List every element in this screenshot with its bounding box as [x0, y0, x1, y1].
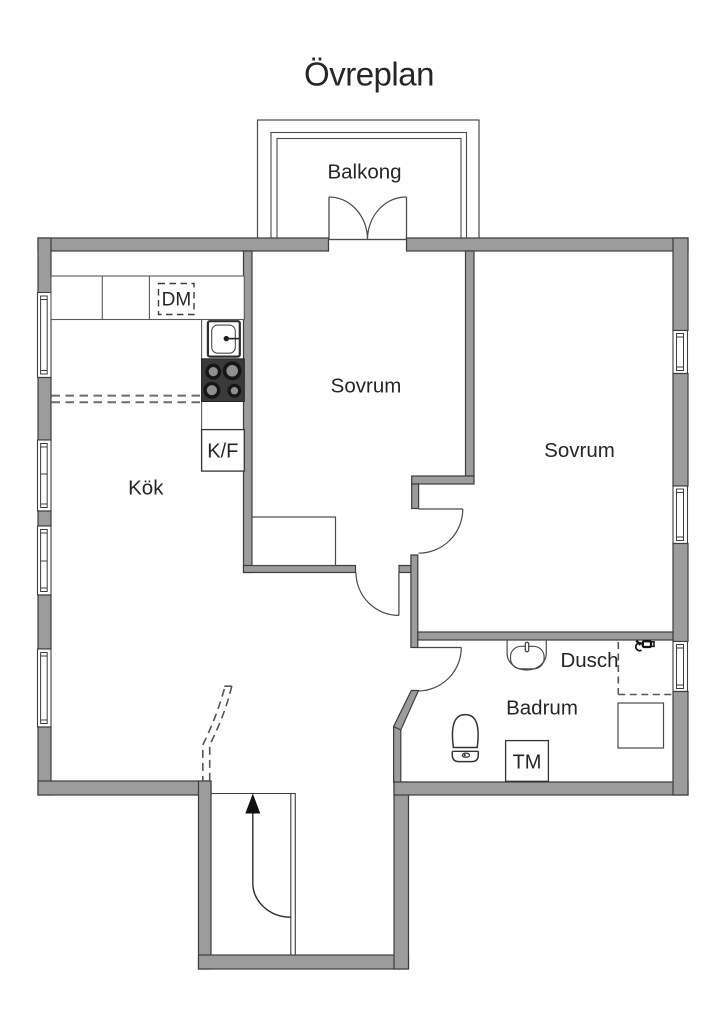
svg-text:K/F: K/F	[207, 441, 238, 463]
svg-text:Sovrum: Sovrum	[544, 439, 615, 462]
svg-text:Sovrum: Sovrum	[331, 375, 402, 398]
svg-text:Dusch: Dusch	[560, 649, 618, 672]
svg-text:Kök: Kök	[128, 477, 164, 500]
svg-text:Badrum: Badrum	[506, 697, 578, 720]
svg-text:DM: DM	[162, 290, 192, 311]
svg-text:Övreplan: Övreplan	[304, 56, 434, 93]
svg-text:Balkong: Balkong	[327, 161, 401, 184]
svg-text:TM: TM	[513, 752, 542, 774]
